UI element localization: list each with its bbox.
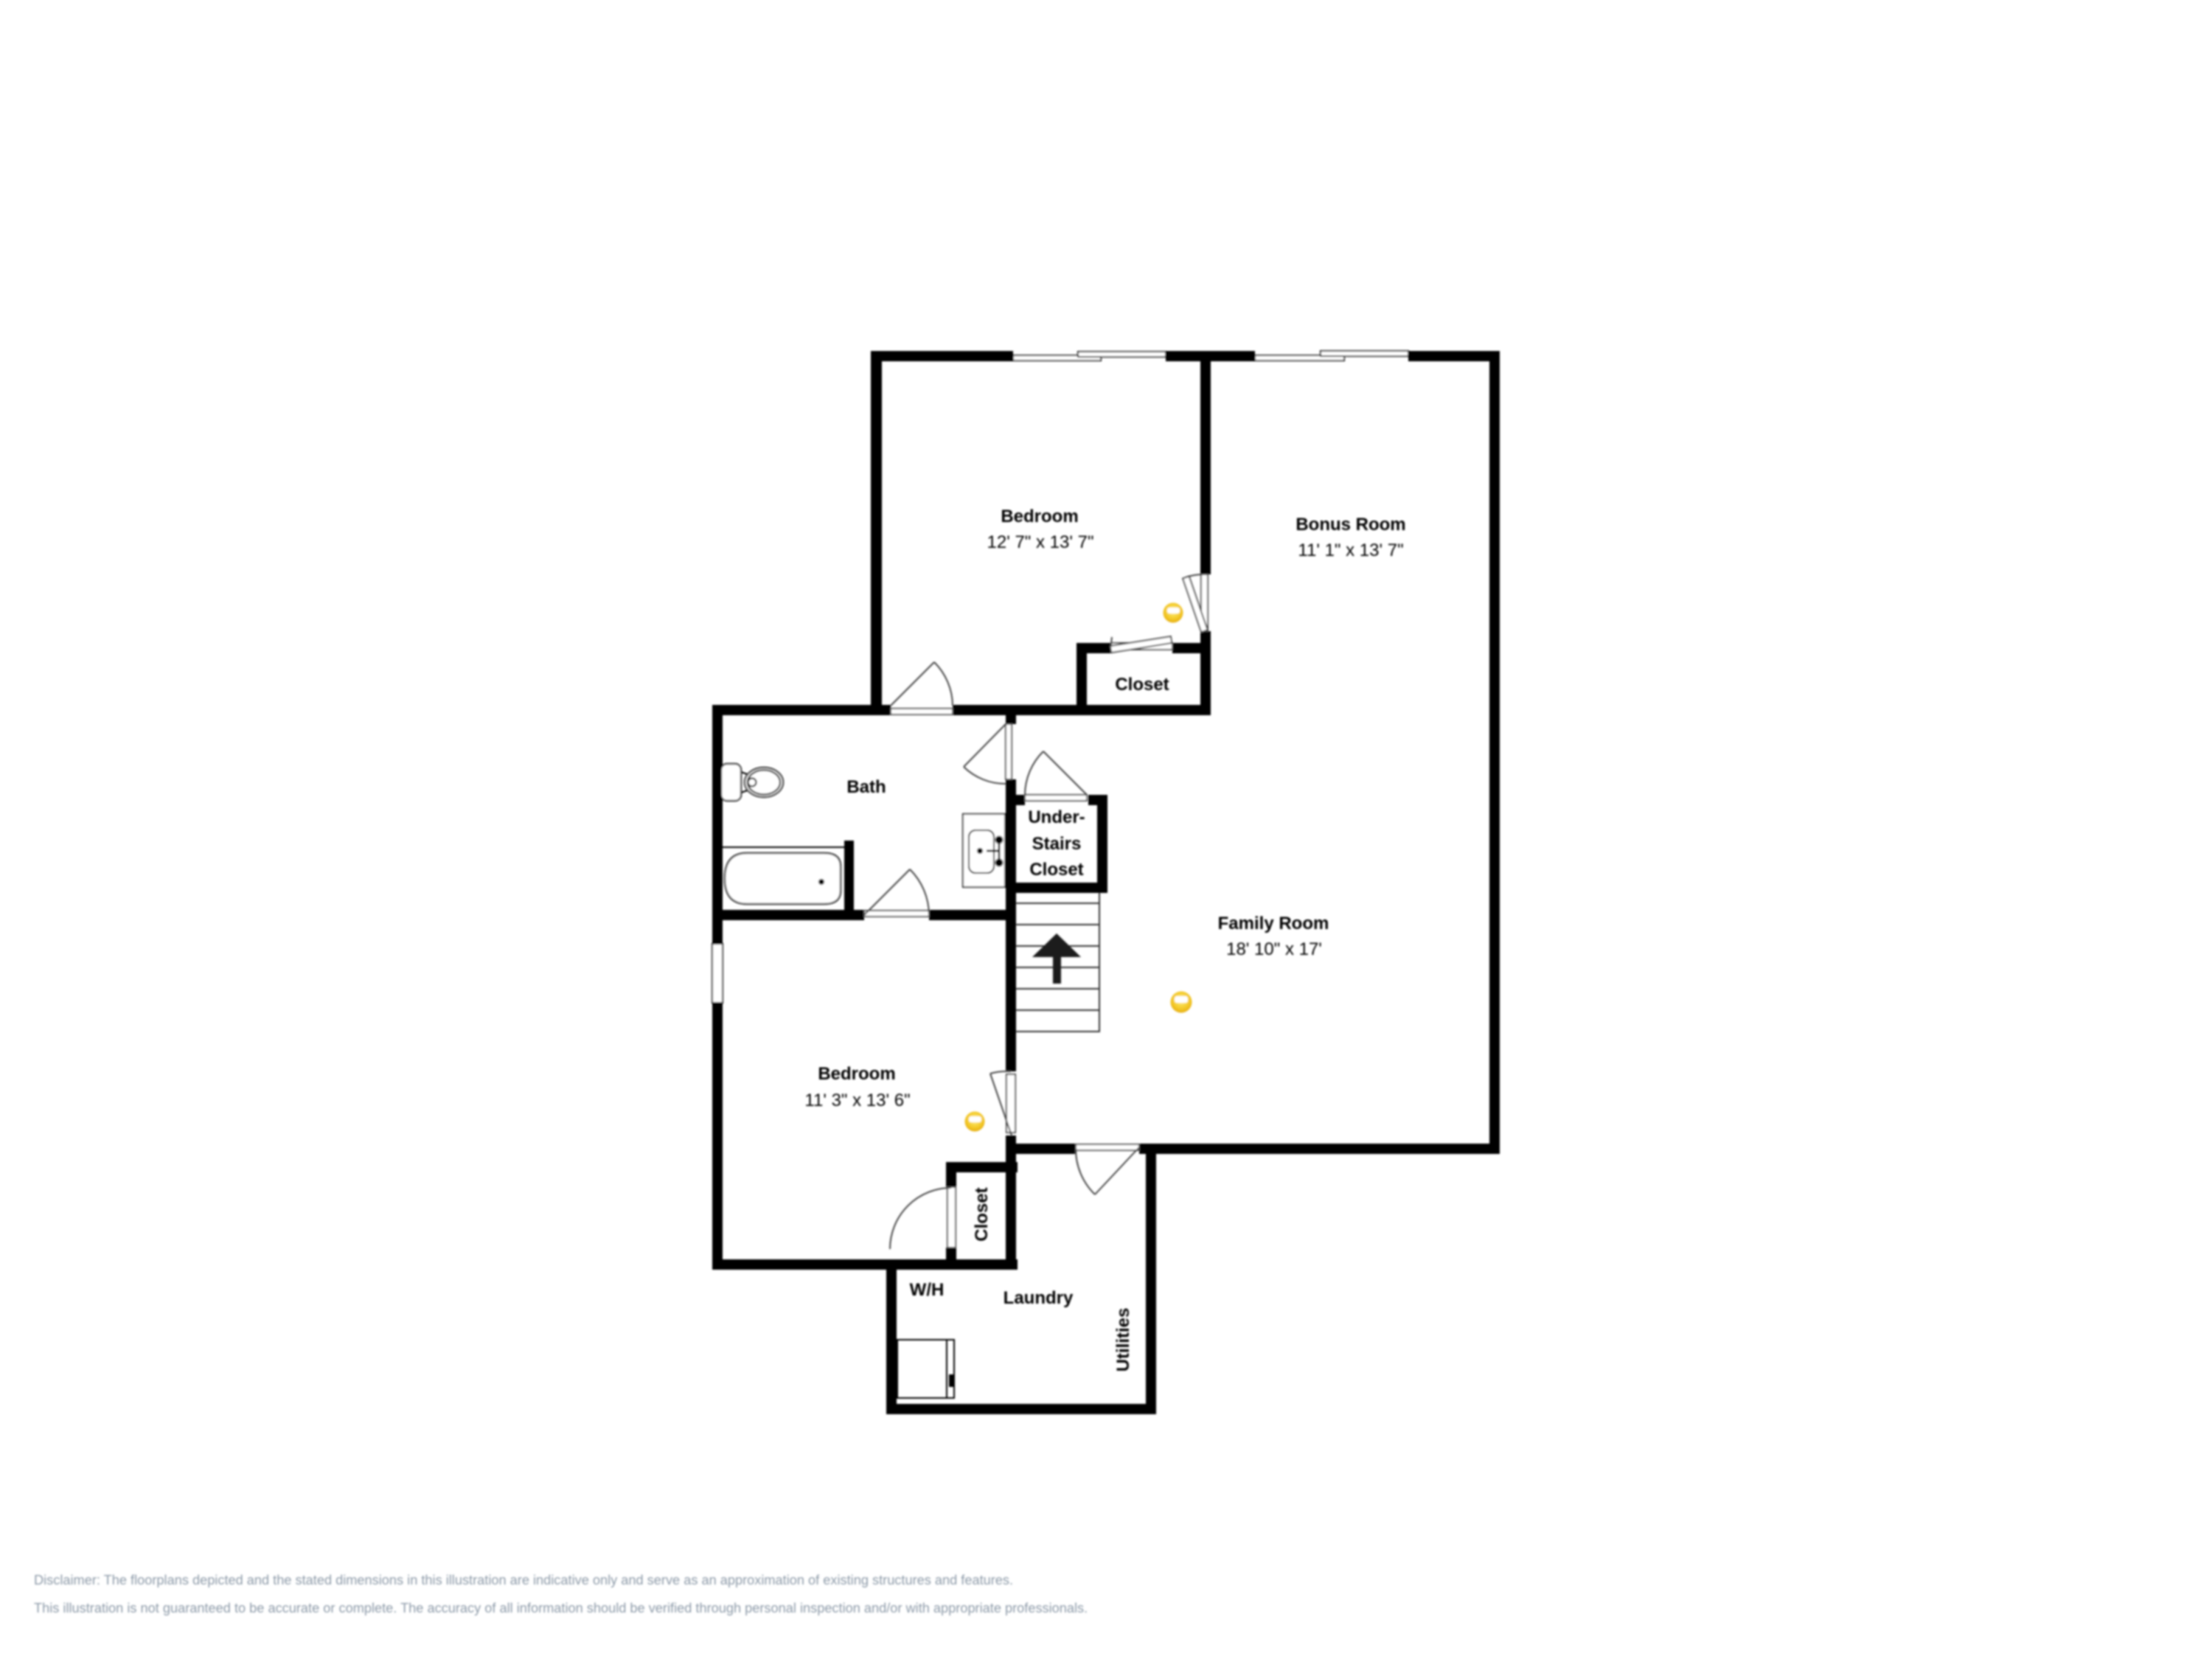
svg-text:11' 3" x 13' 6": 11' 3" x 13' 6"	[804, 1091, 910, 1110]
svg-text:12' 7" x 13' 7": 12' 7" x 13' 7"	[987, 532, 1094, 552]
svg-text:Bedroom: Bedroom	[1001, 507, 1078, 526]
svg-text:Closet: Closet	[1115, 675, 1169, 695]
svg-text:Bedroom: Bedroom	[818, 1064, 895, 1084]
svg-text:Family Room: Family Room	[1218, 914, 1329, 933]
svg-text:Stairs: Stairs	[1032, 834, 1082, 854]
svg-text:This illustration is not guara: This illustration is not guaranteed to b…	[34, 1601, 1088, 1615]
svg-text:Bonus Room: Bonus Room	[1295, 515, 1405, 535]
svg-text:Laundry: Laundry	[1004, 1288, 1074, 1308]
svg-text:Bath: Bath	[846, 777, 886, 797]
svg-text:11' 1" x 13' 7": 11' 1" x 13' 7"	[1298, 540, 1403, 560]
svg-text:Disclaimer: The floorplans dep: Disclaimer: The floorplans depicted and …	[34, 1573, 1013, 1587]
svg-text:W/H: W/H	[910, 1280, 945, 1300]
svg-text:Closet: Closet	[972, 1187, 992, 1241]
svg-text:Utilities: Utilities	[1113, 1308, 1133, 1372]
svg-text:Under-: Under-	[1028, 807, 1085, 827]
svg-text:18' 10" x 17': 18' 10" x 17'	[1226, 939, 1322, 959]
svg-text:Closet: Closet	[1029, 860, 1083, 880]
